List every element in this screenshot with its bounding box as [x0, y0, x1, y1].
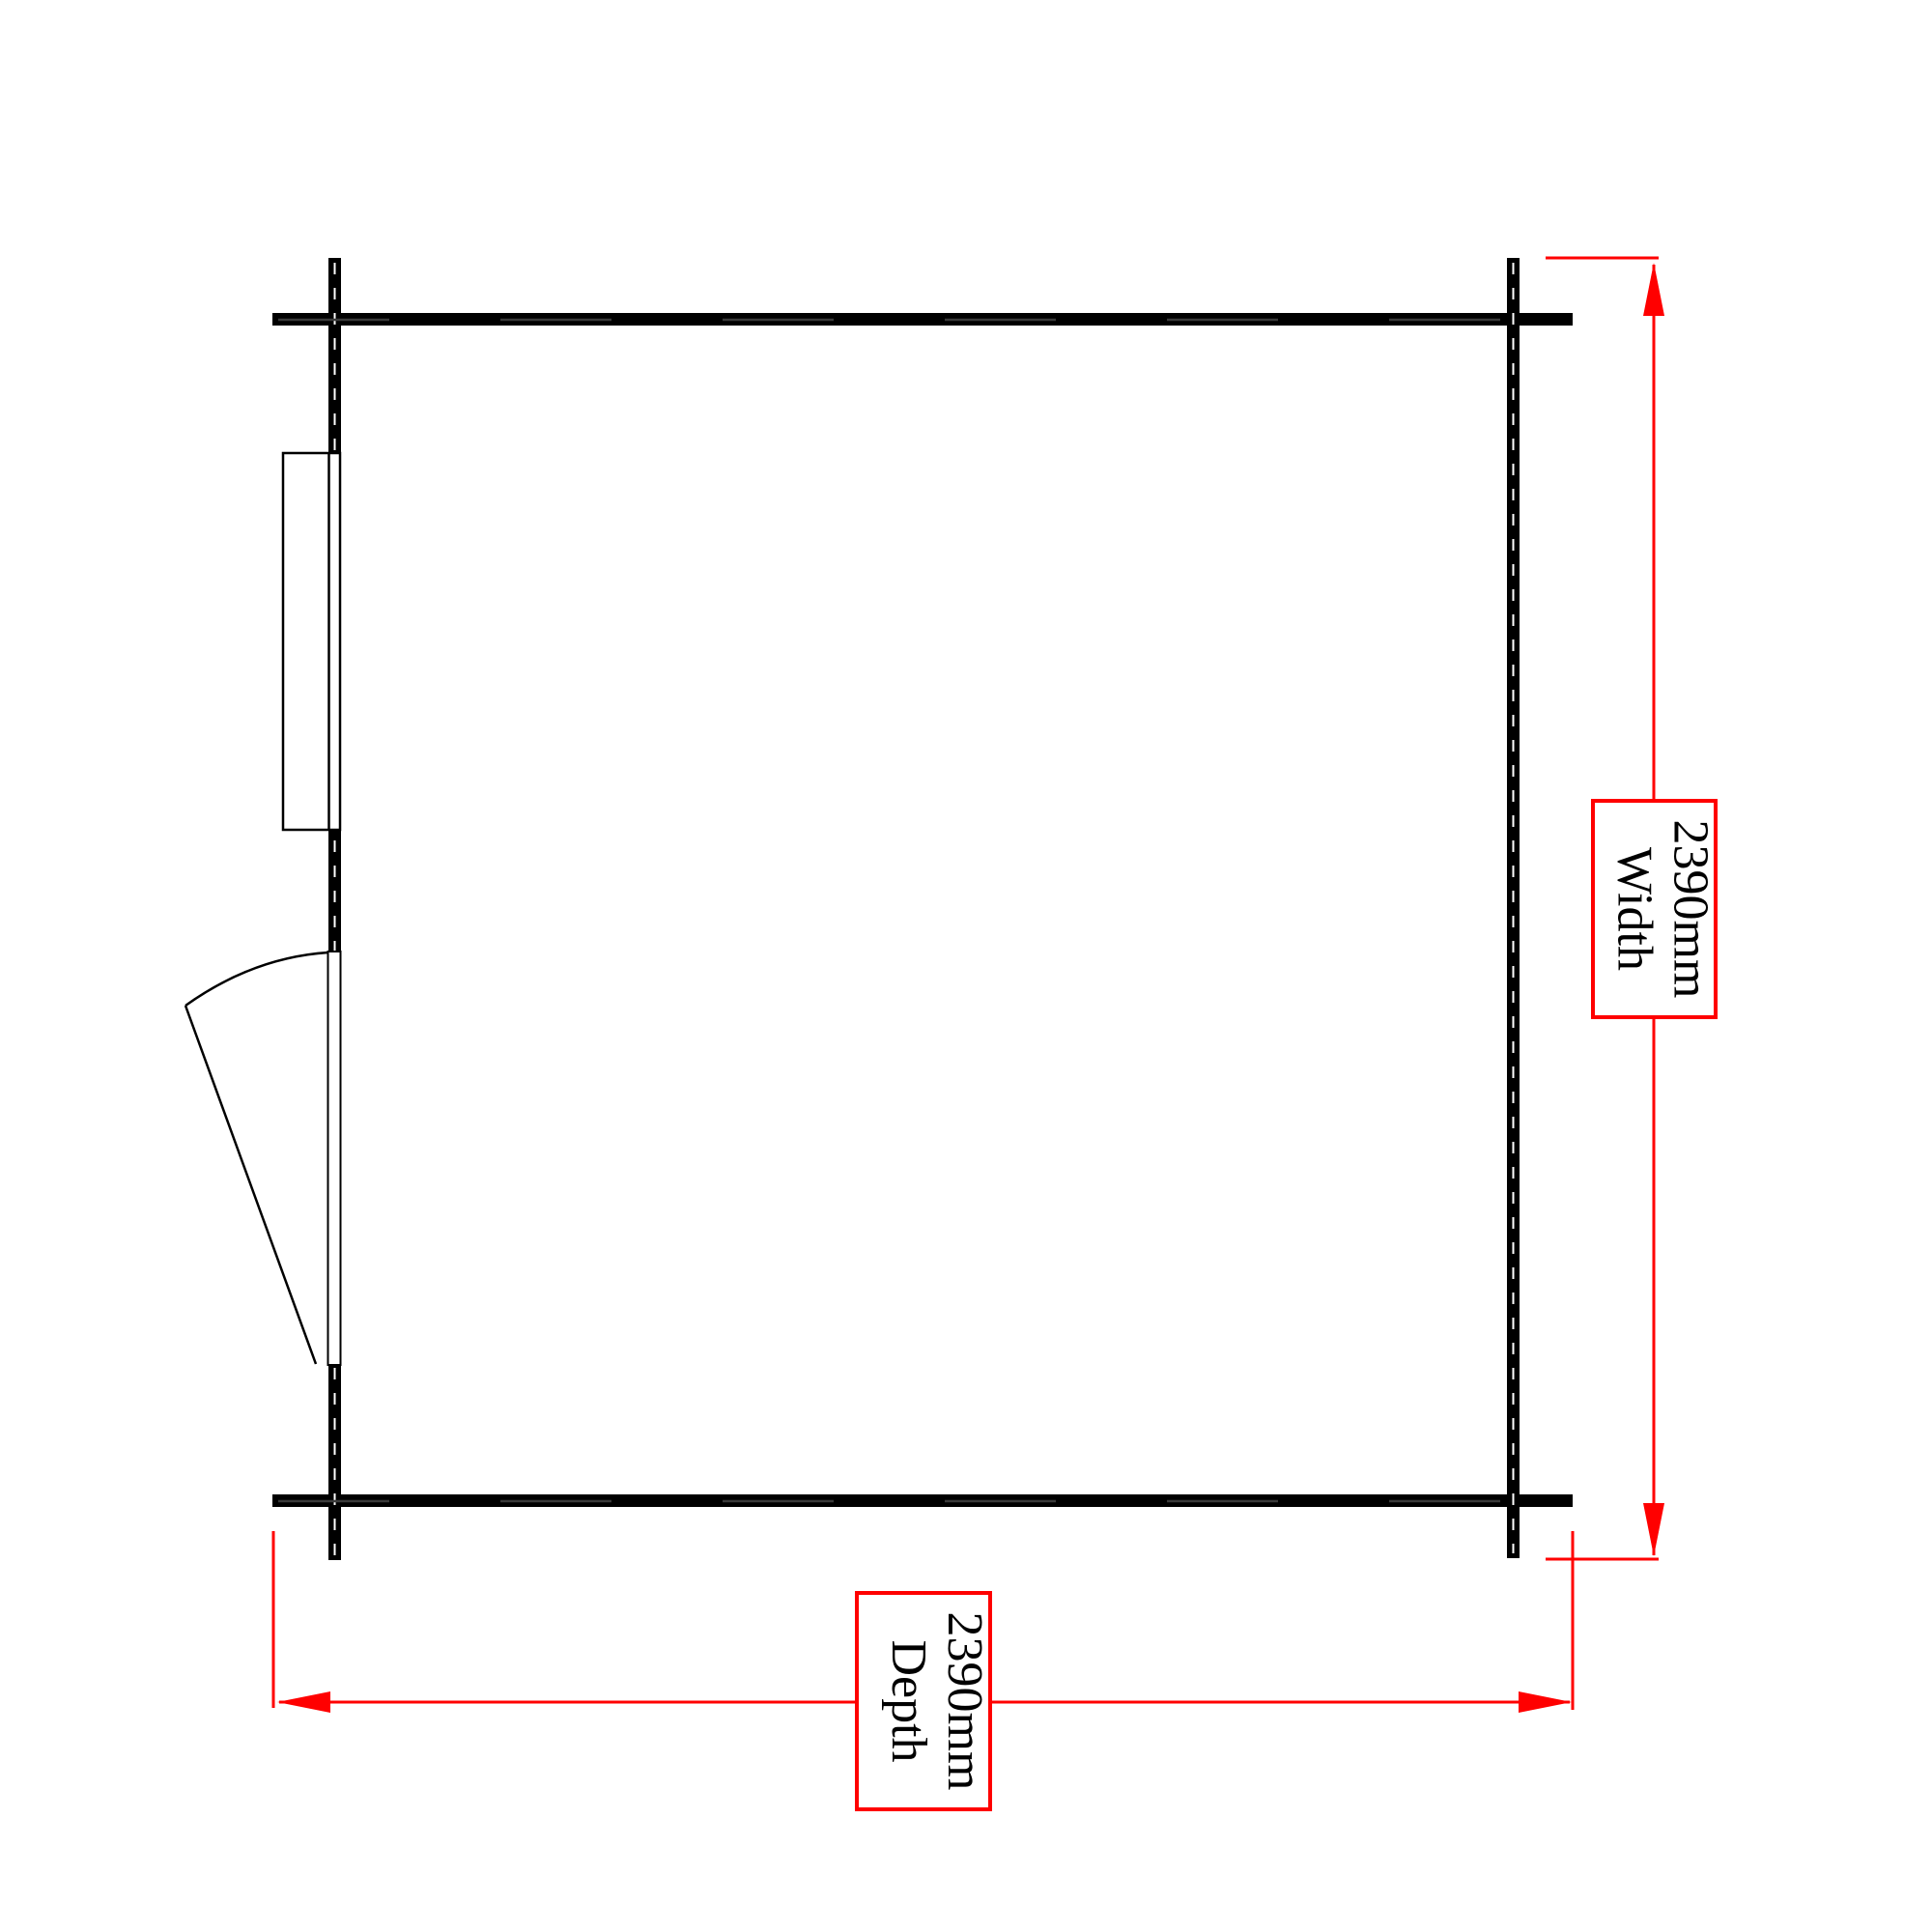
depth-arrow-right-icon: [1519, 1691, 1572, 1713]
width-value: 2390mm: [1662, 799, 1718, 1019]
window-frame: [283, 453, 340, 830]
window: [283, 453, 340, 830]
wall-bottom: [272, 1494, 1573, 1507]
depth-dimension-label: 2390mm Depth: [855, 1591, 992, 1811]
depth-arrow-left-icon: [277, 1691, 330, 1713]
door-frame: [328, 952, 341, 1365]
width-caption: Width: [1605, 799, 1662, 1019]
wall-top: [272, 313, 1573, 326]
depth-caption: Depth: [880, 1591, 936, 1811]
door: [185, 952, 341, 1365]
width-dimension-label: 2390mm Width: [1591, 799, 1718, 1019]
width-arrow-up-icon: [1643, 263, 1664, 316]
floor-plan-canvas: 2390mm Width 2390mm Depth: [0, 0, 1932, 1932]
door-leaf: [185, 1006, 316, 1364]
walls: [272, 258, 1573, 1560]
door-swing-arc: [185, 952, 328, 1006]
width-dimension-text: 2390mm Width: [1591, 799, 1718, 1019]
width-arrow-down-icon: [1643, 1503, 1664, 1556]
depth-dimension-text: 2390mm Depth: [855, 1591, 992, 1811]
depth-value: 2390mm: [936, 1591, 992, 1811]
wall-right: [1507, 258, 1520, 1558]
